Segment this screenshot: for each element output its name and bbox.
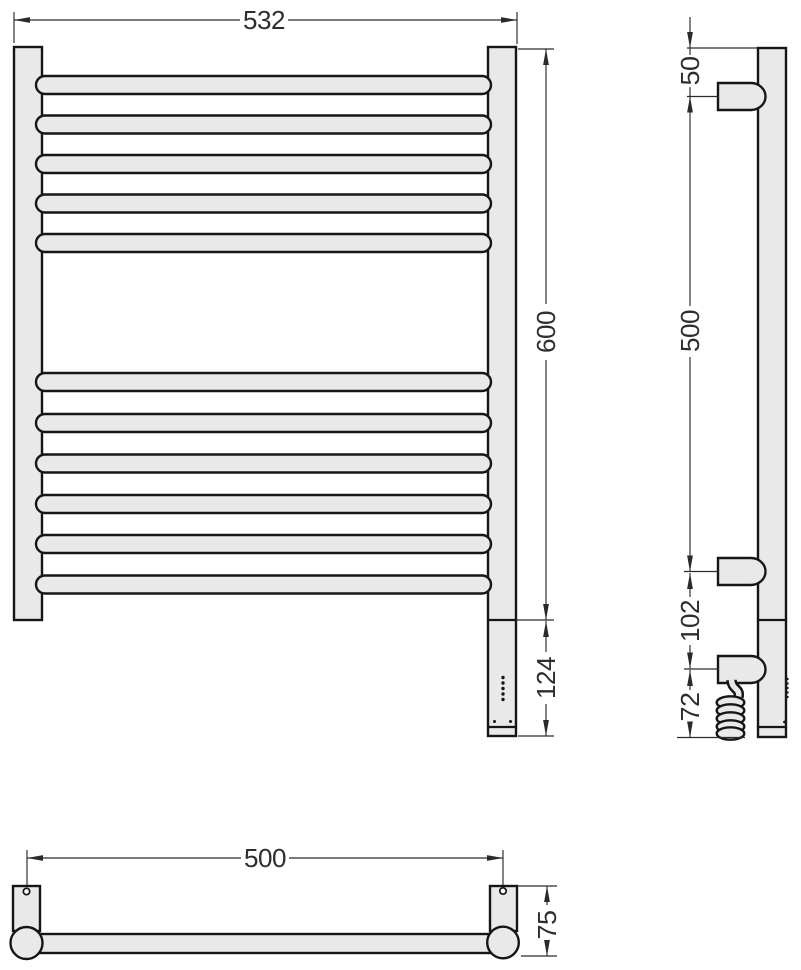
front-view: 532 600 124 — [14, 5, 561, 736]
side-view: 50 500 102 72 — [675, 17, 789, 740]
plan-rail-bar — [26, 934, 504, 953]
power-cable-coil — [717, 680, 745, 740]
mounting-hole-right — [500, 888, 506, 894]
towel-rail-rung — [36, 195, 491, 213]
dimension-width-532: 532 — [14, 5, 517, 44]
towel-rail-technical-drawing: 532 600 124 — [0, 0, 801, 970]
dim-label-500-side: 500 — [675, 310, 705, 352]
dim-label-532: 532 — [243, 5, 285, 35]
arrowhead-down — [687, 32, 693, 48]
wall-bracket-bottom — [718, 558, 766, 585]
dimension-height-600: 600 — [516, 49, 561, 620]
arrowhead-right — [487, 855, 503, 861]
towel-rail-rung — [36, 414, 491, 432]
dim-label-124: 124 — [531, 657, 561, 699]
dim-label-50: 50 — [675, 56, 705, 85]
dimension-heater-124: 124 — [518, 621, 561, 736]
towel-rail-rung — [36, 495, 491, 513]
dim-label-75: 75 — [532, 910, 562, 939]
dimension-depth-75: 75 — [518, 886, 562, 956]
towel-rail-rung — [36, 116, 491, 134]
dimension-bracket-span-500: 500 — [675, 97, 719, 572]
arrowhead-left — [27, 855, 43, 861]
dim-label-500-plan: 500 — [244, 843, 286, 873]
arrowhead-left — [14, 17, 30, 23]
front-left-post — [14, 47, 42, 620]
front-rungs — [36, 76, 491, 594]
plan-left-post-end — [11, 927, 43, 959]
arrowhead-down — [543, 604, 549, 620]
dimension-bracket-to-cable-102: 102 — [675, 573, 719, 669]
cable-entry-bracket — [718, 656, 766, 683]
wall-bracket-top — [718, 83, 766, 110]
towel-rail-rung — [36, 373, 491, 391]
towel-rail-rung — [36, 155, 491, 173]
arrowhead-up — [543, 49, 549, 65]
arrowhead-up — [543, 621, 549, 637]
mounting-hole-left — [23, 888, 29, 894]
dim-label-72: 72 — [675, 692, 705, 721]
towel-rail-rung — [36, 234, 491, 252]
towel-rail-rung — [36, 76, 491, 94]
side-post — [758, 48, 786, 737]
plan-right-post-end — [487, 927, 519, 959]
dim-label-102: 102 — [675, 600, 705, 642]
arrowhead-right — [501, 17, 517, 23]
towel-rail-rung — [36, 576, 491, 594]
dimension-mount-span-500: 500 — [27, 843, 503, 885]
arrowhead-down — [543, 720, 549, 736]
towel-rail-rung — [36, 535, 491, 553]
plan-view: 500 75 — [11, 843, 563, 959]
towel-rail-rung — [36, 455, 491, 473]
front-right-post — [488, 47, 516, 736]
dim-label-600: 600 — [531, 311, 561, 353]
